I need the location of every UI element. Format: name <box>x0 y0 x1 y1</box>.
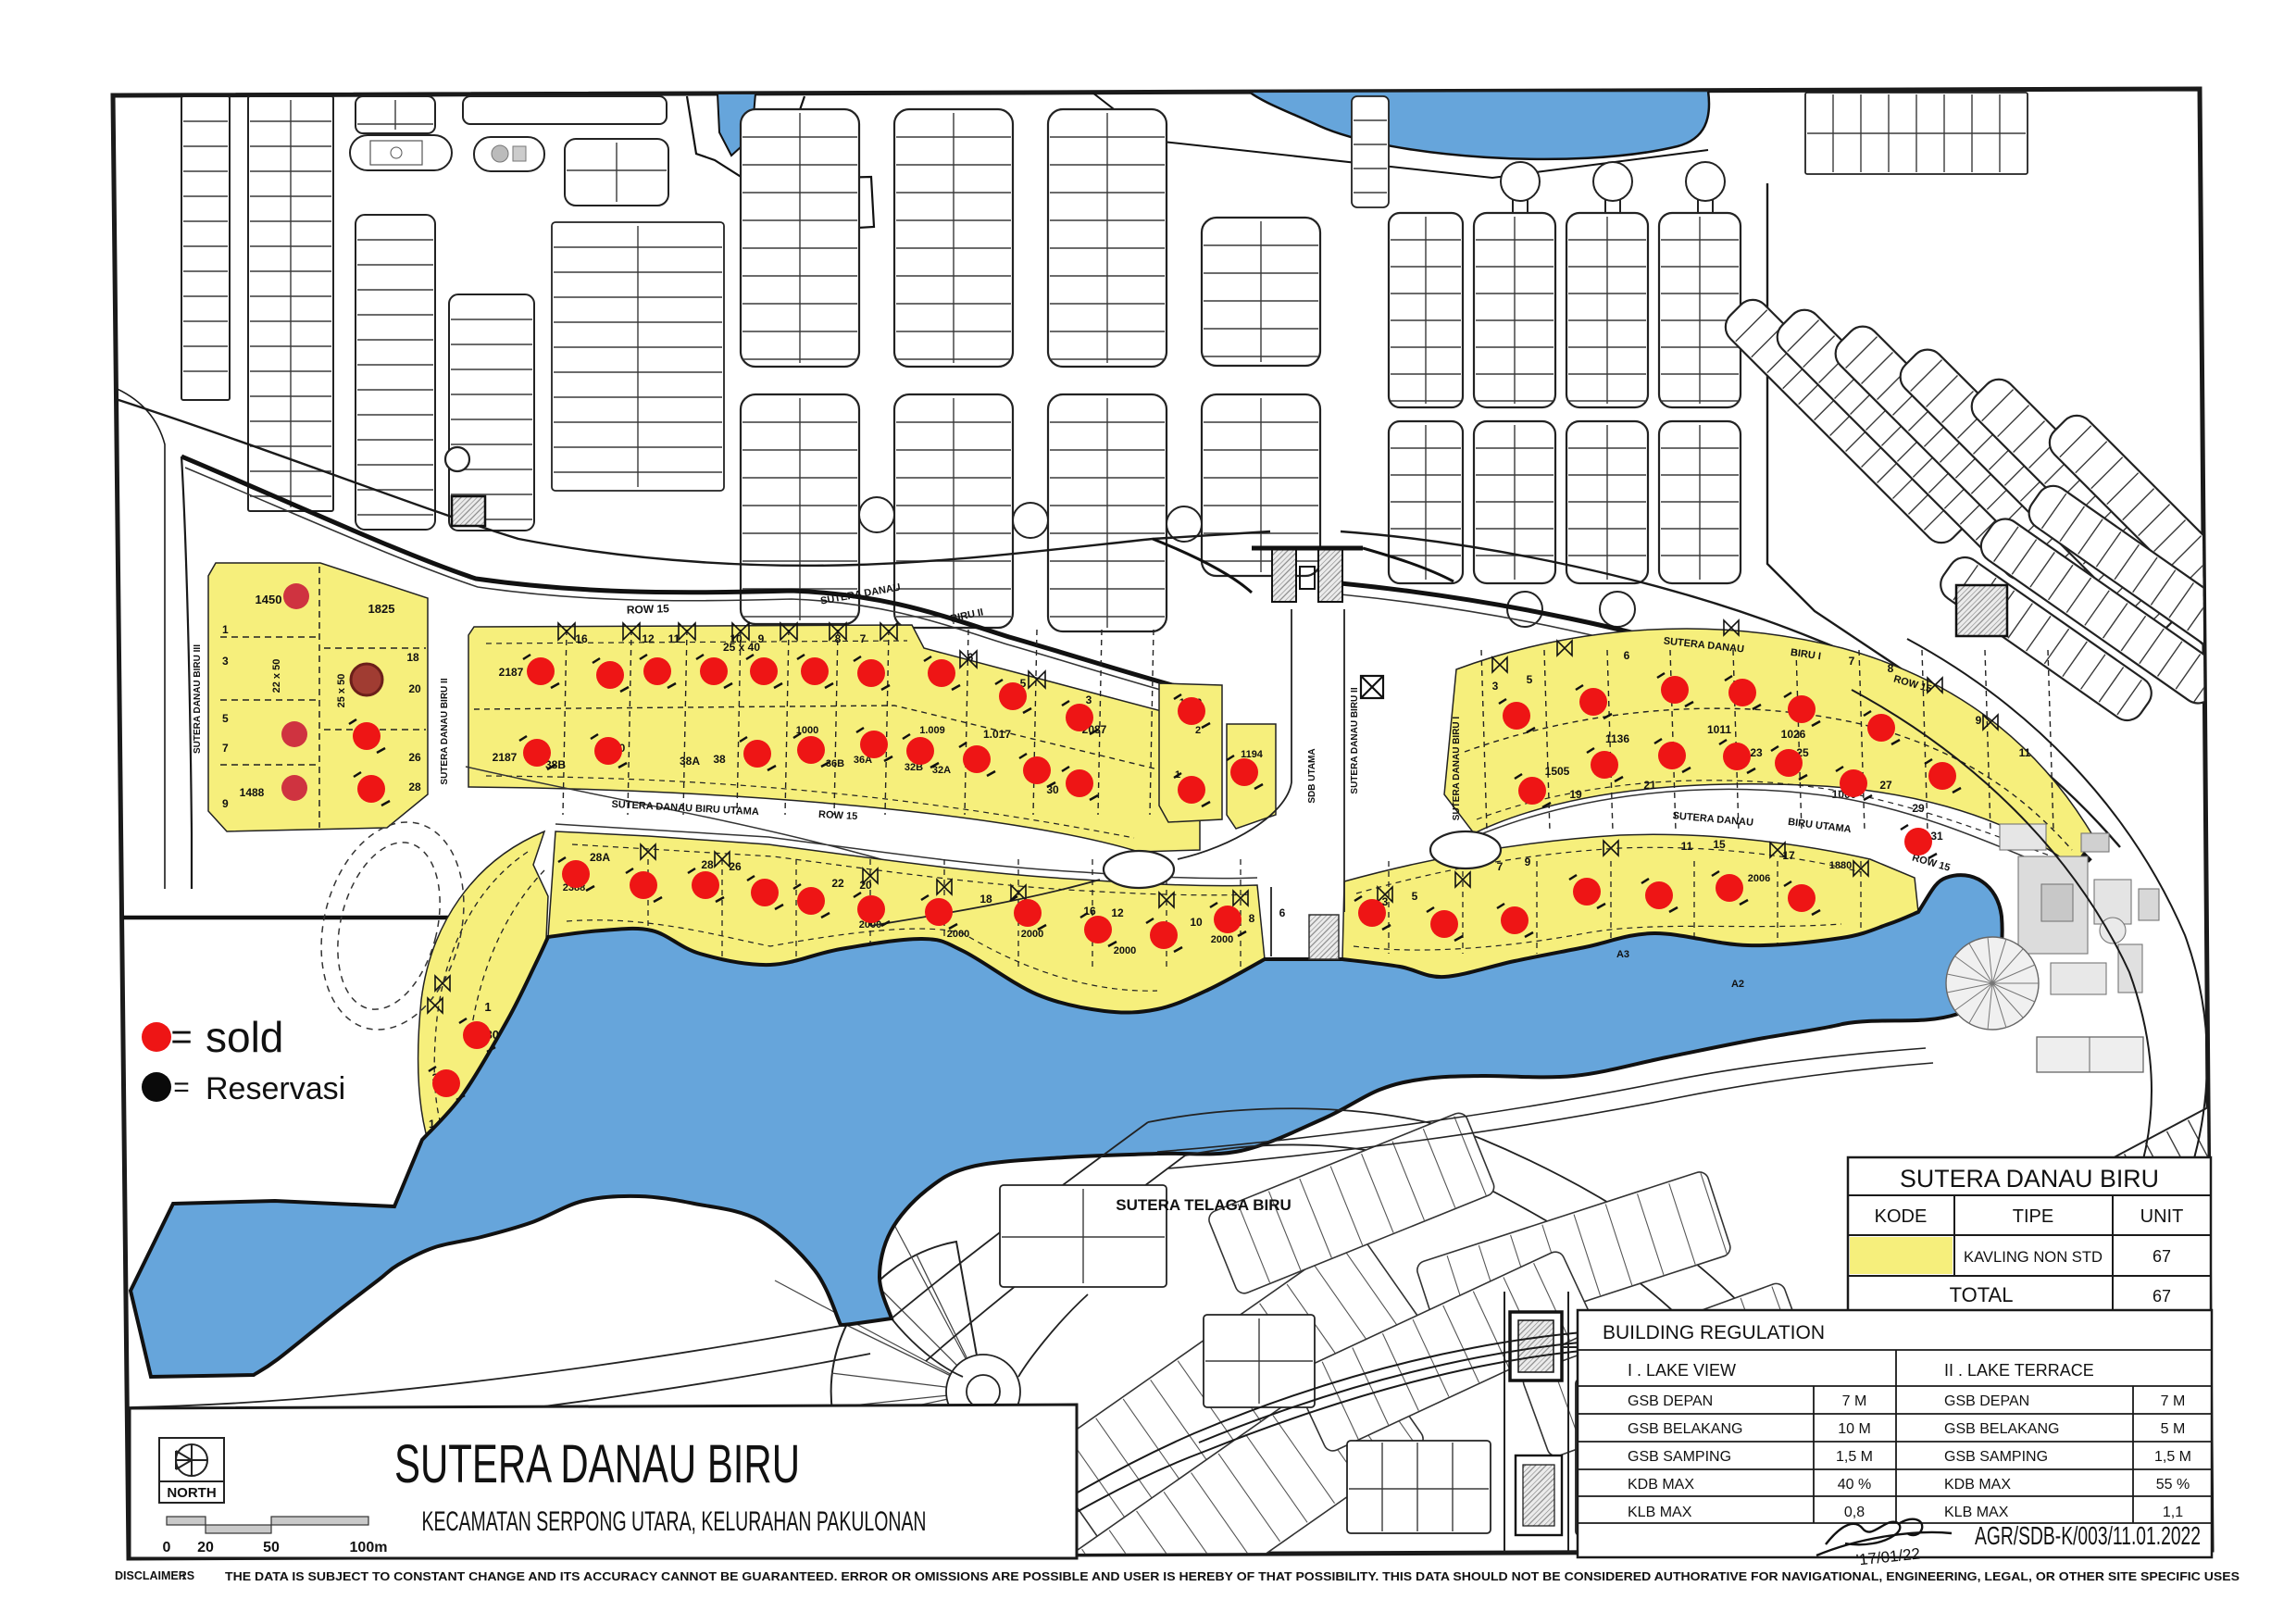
svg-text:1: 1 <box>484 1000 491 1014</box>
svg-text:SUTERA DANAU BIRU III: SUTERA DANAU BIRU III <box>193 644 203 754</box>
svg-text:1026: 1026 <box>1781 728 1806 741</box>
svg-text:GSB SAMPING: GSB SAMPING <box>1628 1449 1731 1465</box>
svg-text:15: 15 <box>1713 838 1726 851</box>
svg-text:KDB MAX: KDB MAX <box>1944 1477 2011 1493</box>
svg-text:10 M: 10 M <box>1838 1421 1871 1437</box>
svg-text:2000: 2000 <box>1114 945 1136 956</box>
svg-text:1136: 1136 <box>1605 732 1629 745</box>
svg-text:ROW 15: ROW 15 <box>818 809 858 822</box>
svg-text:2187: 2187 <box>493 751 518 764</box>
svg-text:1.017: 1.017 <box>983 728 1011 741</box>
svg-text:3: 3 <box>1492 680 1499 693</box>
svg-text:BUILDING REGULATION: BUILDING REGULATION <box>1603 1322 1825 1343</box>
svg-text:26: 26 <box>729 860 742 873</box>
svg-text:1505: 1505 <box>1545 765 1570 778</box>
svg-text:9: 9 <box>1976 714 1982 727</box>
svg-text:AGR/SDB-K/003/11.01.2022: AGR/SDB-K/003/11.01.2022 <box>1975 1521 2201 1550</box>
svg-text:11: 11 <box>1681 840 1693 853</box>
svg-text:5: 5 <box>1412 890 1418 903</box>
svg-text:3: 3 <box>1086 693 1092 706</box>
svg-text:A3: A3 <box>1616 949 1629 960</box>
svg-text:KDB MAX: KDB MAX <box>1628 1477 1694 1493</box>
svg-text:1,1: 1,1 <box>2163 1505 2183 1520</box>
svg-text:1011: 1011 <box>1707 723 1731 736</box>
svg-text::: : <box>181 1569 185 1582</box>
svg-text:SUTERA DANAU BIRU: SUTERA DANAU BIRU <box>394 1434 800 1494</box>
svg-text:27: 27 <box>1879 779 1892 792</box>
svg-text:6: 6 <box>1279 906 1286 919</box>
svg-text:Reservasi: Reservasi <box>206 1071 345 1106</box>
svg-text:7 M: 7 M <box>2161 1393 2186 1409</box>
svg-text:GSB SAMPING: GSB SAMPING <box>1944 1449 2048 1465</box>
svg-text:20: 20 <box>197 1540 214 1555</box>
svg-text:23: 23 <box>1750 746 1763 759</box>
svg-text:=: = <box>173 1072 190 1103</box>
svg-text:25 x 50: 25 x 50 <box>336 674 347 708</box>
svg-text:TIPE: TIPE <box>2013 1206 2053 1227</box>
svg-text:2000: 2000 <box>1021 929 1043 940</box>
svg-text:SUTERA DANAU BIRU II: SUTERA DANAU BIRU II <box>440 678 450 784</box>
svg-text:22: 22 <box>831 877 844 890</box>
svg-text:12: 12 <box>642 632 655 645</box>
svg-text:KODE: KODE <box>1875 1206 1928 1227</box>
svg-text:2000: 2000 <box>1211 934 1233 945</box>
svg-text:3: 3 <box>222 655 229 668</box>
svg-text:GSB DEPAN: GSB DEPAN <box>1628 1393 1713 1409</box>
svg-text:1,5 M: 1,5 M <box>1836 1449 1873 1465</box>
svg-text:2: 2 <box>1195 725 1201 736</box>
svg-text:UNIT: UNIT <box>2140 1206 2184 1227</box>
svg-text:1.009: 1.009 <box>919 725 945 736</box>
svg-text:11: 11 <box>2019 746 2031 759</box>
svg-text:KLB MAX: KLB MAX <box>1944 1505 2009 1520</box>
svg-text:28: 28 <box>408 781 421 793</box>
svg-text:ROW 15: ROW 15 <box>627 602 670 617</box>
svg-text:8: 8 <box>1249 912 1255 925</box>
svg-text:SDB UTAMA: SDB UTAMA <box>1307 748 1317 803</box>
svg-text:67: 67 <box>2152 1247 2171 1266</box>
svg-text:28: 28 <box>701 858 714 871</box>
svg-text:SUTERA DANAU BIRU: SUTERA DANAU BIRU <box>1900 1165 2159 1193</box>
svg-text:7: 7 <box>222 742 229 755</box>
svg-text:21: 21 <box>1643 779 1656 792</box>
svg-text:GSB BELAKANG: GSB BELAKANG <box>1944 1421 2060 1437</box>
svg-text:GSB BELAKANG: GSB BELAKANG <box>1628 1421 1743 1437</box>
svg-text:2187: 2187 <box>499 666 524 679</box>
svg-text:40 %: 40 % <box>1838 1477 1871 1493</box>
svg-text:1825: 1825 <box>368 602 395 616</box>
svg-text:22 x 50: 22 x 50 <box>271 659 282 693</box>
svg-text:II . LAKE TERRACE: II . LAKE TERRACE <box>1944 1361 2094 1380</box>
svg-text:5 M: 5 M <box>2161 1421 2186 1437</box>
svg-text:8: 8 <box>1888 662 1894 675</box>
svg-text:TOTAL: TOTAL <box>1950 1283 2014 1306</box>
svg-text:KECAMATAN SERPONG UTARA, KELUR: KECAMATAN SERPONG UTARA, KELURAHAN PAKUL… <box>422 1506 927 1537</box>
svg-text:25 x 40: 25 x 40 <box>723 641 760 654</box>
svg-text:6: 6 <box>1624 649 1630 662</box>
svg-text:1,5 M: 1,5 M <box>2154 1449 2191 1465</box>
svg-text:=: = <box>170 1017 192 1057</box>
svg-text:1450: 1450 <box>256 593 282 606</box>
svg-text:28A: 28A <box>590 851 610 864</box>
svg-text:SUTERA DANAU BIRU II: SUTERA DANAU BIRU II <box>1350 687 1360 793</box>
svg-text:KLB MAX: KLB MAX <box>1628 1505 1692 1520</box>
svg-text:7: 7 <box>860 632 867 645</box>
svg-text:1: 1 <box>222 623 229 636</box>
svg-text:29: 29 <box>1912 802 1925 815</box>
svg-text:7 M: 7 M <box>1842 1393 1867 1409</box>
svg-text:100m: 100m <box>350 1540 388 1555</box>
svg-text:18: 18 <box>406 651 419 664</box>
svg-text:12: 12 <box>1111 906 1124 919</box>
svg-text:5: 5 <box>222 712 229 725</box>
svg-text:SUTERA TELAGA BIRU: SUTERA TELAGA BIRU <box>1116 1196 1291 1214</box>
svg-text:67: 67 <box>2152 1287 2171 1305</box>
svg-text:32A: 32A <box>932 765 951 776</box>
svg-text:NORTH: NORTH <box>167 1485 216 1501</box>
svg-text:55 %: 55 % <box>2156 1477 2190 1493</box>
svg-text:sold: sold <box>206 1013 283 1061</box>
svg-text:I . LAKE VIEW: I . LAKE VIEW <box>1628 1361 1736 1380</box>
svg-text:38: 38 <box>713 753 726 766</box>
svg-text:7: 7 <box>1849 655 1855 668</box>
svg-text:0: 0 <box>163 1540 171 1555</box>
svg-text:26: 26 <box>408 751 421 764</box>
svg-text:50: 50 <box>263 1540 280 1555</box>
svg-text:0,8: 0,8 <box>1844 1505 1865 1520</box>
svg-text:A2: A2 <box>1731 979 1744 990</box>
svg-text:THE DATA IS SUBJECT TO CONSTAN: THE DATA IS SUBJECT TO CONSTANT CHANGE A… <box>225 1570 2240 1583</box>
svg-text:2006: 2006 <box>1748 873 1770 884</box>
svg-text:KAVLING NON STD: KAVLING NON STD <box>1964 1248 2103 1266</box>
svg-text:GSB DEPAN: GSB DEPAN <box>1944 1393 2029 1409</box>
svg-text:5: 5 <box>1527 673 1533 686</box>
svg-text:SUTERA DANAU BIRU I: SUTERA DANAU BIRU I <box>1452 717 1462 821</box>
svg-text:38A: 38A <box>680 755 700 768</box>
svg-text:1488: 1488 <box>240 786 265 799</box>
svg-text:9: 9 <box>222 797 229 810</box>
svg-text:20: 20 <box>408 682 421 695</box>
svg-text:19: 19 <box>1569 788 1582 801</box>
svg-text:31: 31 <box>1930 830 1943 843</box>
svg-text:18: 18 <box>980 893 992 906</box>
svg-text:10: 10 <box>1190 916 1203 929</box>
